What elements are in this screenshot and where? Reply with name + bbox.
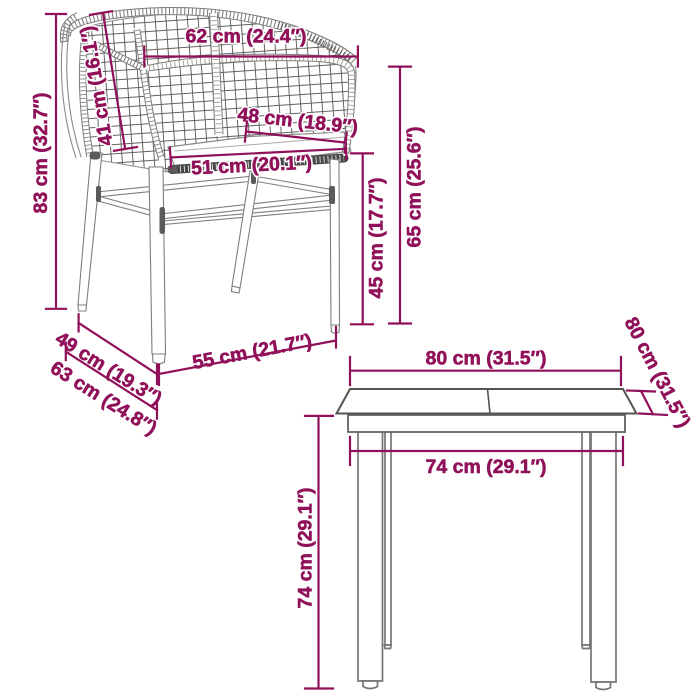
svg-text:65 cm (25.6″): 65 cm (25.6″) xyxy=(404,127,426,248)
svg-text:74 cm (29.1″): 74 cm (29.1″) xyxy=(295,488,317,609)
svg-text:45 cm (17.7″): 45 cm (17.7″) xyxy=(366,178,388,299)
svg-text:62 cm (24.4″): 62 cm (24.4″) xyxy=(186,26,307,48)
svg-text:74 cm (29.1″): 74 cm (29.1″) xyxy=(426,456,547,478)
svg-text:83 cm (32.7″): 83 cm (32.7″) xyxy=(30,93,52,214)
svg-text:80 cm (31.5″): 80 cm (31.5″) xyxy=(426,348,547,370)
